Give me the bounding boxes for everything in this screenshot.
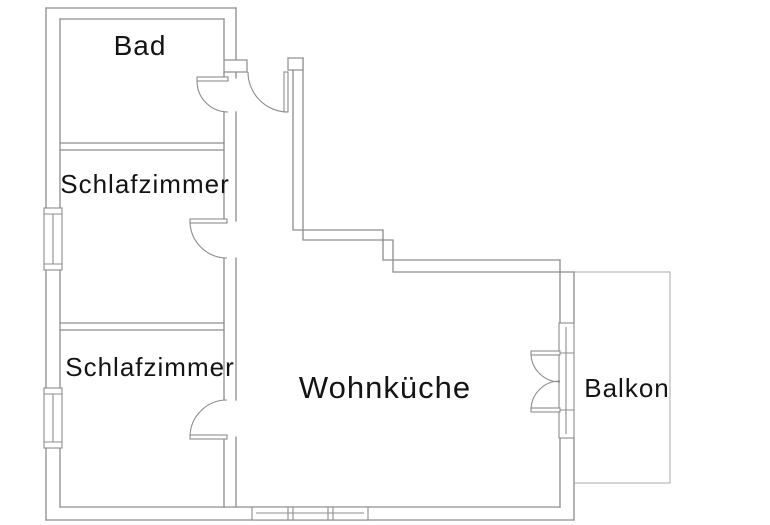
room-label-balkon: Balkon [584, 373, 670, 403]
bad-bedroom1-divider-wall [60, 143, 224, 150]
balcony-door-swing-arc-bottom [531, 381, 560, 410]
bad-door-swing-arc [197, 81, 228, 112]
room-label-schlafzimmer-2: Schlafzimmer [65, 352, 234, 382]
bedroom1-door-swing-arc [190, 221, 227, 258]
floor-plan-canvas: Bad Schlafzimmer Schlafzimmer Wohnküche … [0, 0, 770, 525]
outer-walls [46, 8, 574, 520]
entrance-door-leaf [284, 72, 288, 112]
left-wall-window-top [44, 208, 62, 270]
bottom-wall-window [252, 507, 368, 520]
bedroom2-door [190, 400, 227, 439]
corridor-right-wall-outer-line [303, 58, 574, 272]
balcony-door-leaf-top [531, 351, 560, 355]
balcony-door-leaf-bottom [531, 408, 560, 412]
entrance-door-jamb-right [288, 58, 303, 70]
room-labels: Bad Schlafzimmer Schlafzimmer Wohnküche … [60, 30, 669, 405]
corridor-right-wall-inner-line [293, 70, 560, 260]
entrance-door-swing-arc [248, 72, 288, 112]
bedroom1-door [190, 219, 227, 258]
balcony-double-door [531, 351, 560, 412]
entrance-door [224, 58, 303, 112]
bedroom1-door-leaf [190, 219, 227, 223]
balcony-door-swing-arc-top [531, 353, 560, 382]
bad-door [197, 77, 228, 112]
entrance-door-jamb-left [224, 60, 247, 72]
bedroom1-bedroom2-divider-wall [60, 323, 224, 330]
bedroom2-door-swing-arc [190, 400, 227, 437]
room-label-schlafzimmer-1: Schlafzimmer [60, 169, 229, 199]
room-label-wohnkueche: Wohnküche [299, 370, 471, 405]
room-label-bad: Bad [114, 30, 167, 61]
bad-door-leaf [197, 77, 228, 81]
bedroom2-door-leaf [190, 435, 227, 439]
inner-walls [60, 8, 236, 507]
balcony-wall-window [559, 323, 574, 438]
floorplan-page: Bad Schlafzimmer Schlafzimmer Wohnküche … [0, 0, 770, 525]
left-wall-window-bottom [44, 388, 62, 448]
